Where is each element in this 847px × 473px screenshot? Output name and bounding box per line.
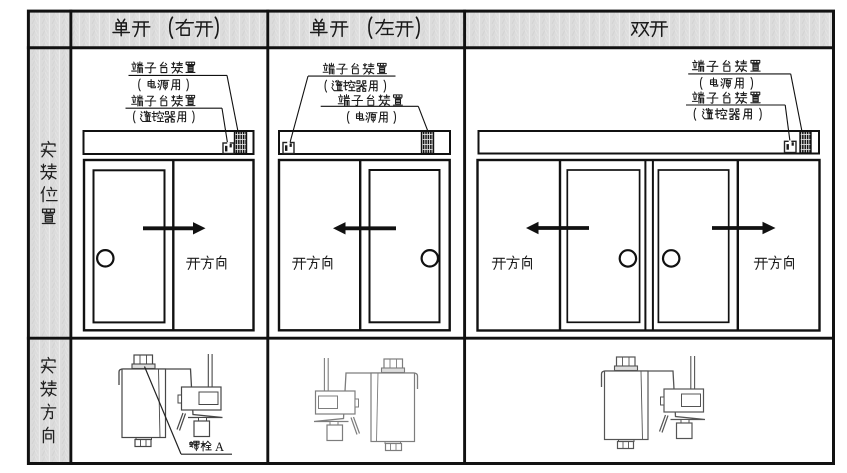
svg-text:A: A	[215, 440, 224, 454]
